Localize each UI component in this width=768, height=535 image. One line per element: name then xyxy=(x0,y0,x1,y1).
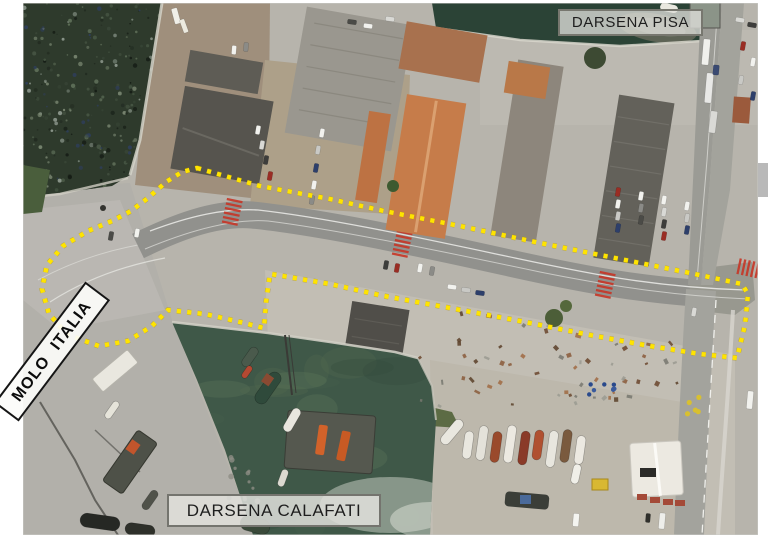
label-darsena-pisa: DARSENA PISA xyxy=(558,9,703,36)
slide-page: DARSENA PISA DARSENA CALAFATI MOLO ITALI… xyxy=(0,0,768,535)
label-darsena-calafati: DARSENA CALAFATI xyxy=(167,494,381,527)
satellite-map xyxy=(0,0,768,535)
label-darsena-pisa-text: DARSENA PISA xyxy=(572,14,689,31)
label-darsena-calafati-text: DARSENA CALAFATI xyxy=(187,501,362,521)
scrollbar-thumb[interactable] xyxy=(758,163,768,197)
